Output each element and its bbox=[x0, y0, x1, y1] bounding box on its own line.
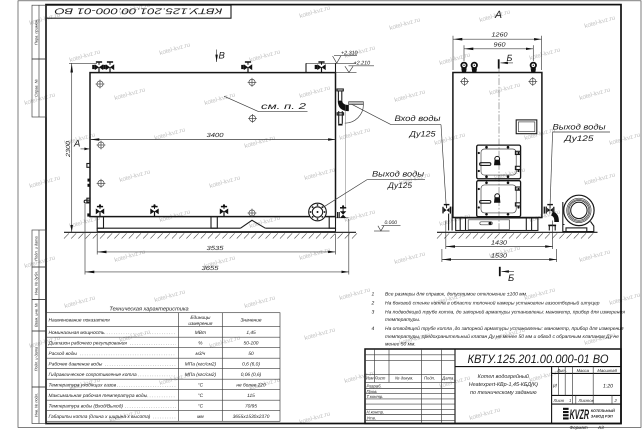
svg-text:kotel-kvz.ru: kotel-kvz.ru bbox=[299, 246, 332, 262]
svg-text:+2.210: +2.210 bbox=[354, 60, 371, 66]
svg-text:1: 1 bbox=[372, 292, 375, 298]
svg-text:Расход воды: Расход воды bbox=[49, 351, 78, 357]
svg-text:kotel-kvz.ru: kotel-kvz.ru bbox=[304, 326, 337, 342]
svg-text:Ду125: Ду125 bbox=[408, 129, 436, 138]
svg-text:2: 2 bbox=[614, 398, 618, 403]
svg-text:kotel-kvz.ru: kotel-kvz.ru bbox=[299, 4, 332, 20]
svg-text:Ду125: Ду125 bbox=[563, 134, 594, 143]
svg-text:А: А bbox=[494, 9, 502, 21]
svg-text:КВТУ.125.201.00.000-01 ВО: КВТУ.125.201.00.000-01 ВО bbox=[468, 352, 609, 366]
svg-text:1430: 1430 bbox=[491, 240, 508, 247]
svg-text:kotel-kvz.ru: kotel-kvz.ru bbox=[299, 84, 332, 100]
svg-text:°С: °С bbox=[198, 393, 204, 399]
svg-text:Выход воды: Выход воды bbox=[553, 122, 606, 131]
svg-text:Единицы: Единицы bbox=[190, 315, 211, 321]
svg-text:kotel-kvz.ru: kotel-kvz.ru bbox=[244, 294, 277, 310]
svg-text:1:20: 1:20 bbox=[603, 384, 613, 390]
svg-text:+2.310: +2.310 bbox=[341, 50, 358, 56]
svg-text:В: В bbox=[219, 51, 226, 62]
svg-text:Взам. инв. №: Взам. инв. № bbox=[34, 302, 39, 327]
svg-text:kotel-kvz.ru: kotel-kvz.ru bbox=[339, 286, 372, 302]
svg-text:70/95: 70/95 bbox=[245, 403, 257, 409]
svg-text:kotel-kvz.ru: kotel-kvz.ru bbox=[29, 174, 62, 190]
svg-text:ЗАВОД РЭП: ЗАВОД РЭП bbox=[591, 414, 613, 418]
svg-text:Инв. № подл.: Инв. № подл. bbox=[34, 393, 39, 417]
svg-text:kotel-kvz.ru: kotel-kvz.ru bbox=[114, 86, 147, 102]
svg-text:kotel-kvz.ru: kotel-kvz.ru bbox=[394, 88, 427, 104]
svg-text:kotel-kvz.ru: kotel-kvz.ru bbox=[114, 248, 147, 264]
svg-text:kotel-kvz.ru: kotel-kvz.ru bbox=[24, 254, 57, 270]
svg-text:Пров.: Пров. bbox=[367, 389, 378, 394]
svg-text:kotel-kvz.ru: kotel-kvz.ru bbox=[389, 16, 422, 32]
svg-text:Справ. №: Справ. № bbox=[34, 78, 39, 96]
svg-text:Все размеры для справок, допус: Все размеры для справок, допустимое откл… bbox=[385, 292, 527, 298]
svg-text:Наименование показателя: Наименование показателя bbox=[49, 318, 111, 324]
svg-text:kotel-kvz.ru: kotel-kvz.ru bbox=[579, 248, 612, 264]
svg-text:4: 4 bbox=[372, 326, 375, 332]
svg-text:kotel-kvz.ru: kotel-kvz.ru bbox=[119, 168, 152, 184]
svg-text:Масса: Масса bbox=[577, 368, 590, 373]
svg-text:На подводящей трубе котла, д: На подводящей трубе котла, до запорной а… bbox=[385, 310, 625, 316]
svg-text:kotel-kvz.ru: kotel-kvz.ru bbox=[609, 131, 642, 147]
svg-text:kotel-kvz.ru: kotel-kvz.ru bbox=[584, 14, 617, 30]
svg-text:Масштаб: Масштаб bbox=[597, 368, 617, 373]
svg-text:№ докум.: № докум. bbox=[395, 376, 413, 381]
svg-text:Подп. и дата: Подп. и дата bbox=[34, 235, 39, 260]
svg-text:Выход воды: Выход воды bbox=[372, 169, 424, 178]
svg-text:КВТУ.125.201.00.000-01 ВО: КВТУ.125.201.00.000-01 ВО bbox=[53, 6, 222, 15]
svg-text:МПа (кгс/см2): МПа (кгс/см2) bbox=[185, 361, 217, 367]
svg-text:КОТЕЛЬНЫЙ: КОТЕЛЬНЫЙ bbox=[591, 408, 615, 413]
svg-text:KVZR: KVZR bbox=[570, 407, 590, 422]
svg-text:Техническая характеристика: Техническая характеристика bbox=[109, 306, 188, 312]
svg-text:И: И bbox=[553, 384, 557, 390]
svg-text:Изм Лист: Изм Лист bbox=[366, 376, 386, 381]
svg-text:kotel-kvz.ru: kotel-kvz.ru bbox=[244, 134, 277, 150]
svg-text:0,06 (0,6): 0,06 (0,6) bbox=[241, 372, 262, 378]
svg-text:1: 1 bbox=[569, 398, 571, 403]
svg-text:2300: 2300 bbox=[65, 140, 72, 158]
svg-text:Н.контр.: Н.контр. bbox=[367, 410, 385, 415]
svg-text:kotel-kvz.ru: kotel-kvz.ru bbox=[579, 86, 612, 102]
svg-text:температуры, предохранительный: температуры, предохранительный клапан Ду… bbox=[385, 334, 619, 340]
svg-text:°С: °С bbox=[198, 382, 204, 388]
svg-text:Рабочее давление воды: Рабочее давление воды bbox=[49, 361, 103, 367]
svg-text:50: 50 bbox=[248, 351, 254, 357]
svg-text:Утв.: Утв. bbox=[367, 416, 377, 421]
svg-text:измерения: измерения bbox=[188, 322, 212, 327]
svg-text:не более 220: не более 220 bbox=[236, 382, 266, 388]
svg-text:А3: А3 bbox=[597, 425, 604, 430]
svg-text:Дата: Дата bbox=[441, 376, 454, 381]
svg-text:kotel-kvz.ru: kotel-kvz.ru bbox=[64, 294, 97, 310]
svg-text:Номинальная мощность: Номинальная мощность bbox=[49, 330, 106, 336]
svg-text:Подп.: Подп. bbox=[424, 376, 435, 381]
svg-text:0,6 (6,0): 0,6 (6,0) bbox=[242, 361, 260, 367]
svg-text:Гидравлическое сопротивление к: Гидравлическое сопротивление котла bbox=[49, 372, 137, 378]
svg-text:kotel-kvz.ru: kotel-kvz.ru bbox=[434, 131, 467, 147]
svg-text:3400: 3400 bbox=[207, 132, 225, 139]
svg-text:kotel-kvz.ru: kotel-kvz.ru bbox=[209, 174, 242, 190]
svg-text:0.000: 0.000 bbox=[385, 220, 398, 226]
svg-text:kotel-kvz.ru: kotel-kvz.ru bbox=[159, 41, 192, 57]
svg-text:по техническому заданию: по техническому заданию bbox=[470, 390, 537, 396]
svg-text:Лист: Лист bbox=[553, 398, 565, 403]
svg-text:МВт: МВт bbox=[195, 330, 206, 336]
svg-text:менее 50 мм.: менее 50 мм. bbox=[385, 342, 416, 348]
svg-text:мм: мм bbox=[197, 415, 204, 420]
svg-text:Значение: Значение bbox=[240, 318, 261, 324]
svg-text:kotel-kvz.ru: kotel-kvz.ru bbox=[204, 91, 237, 107]
svg-text:kotel-kvz.ru: kotel-kvz.ru bbox=[394, 250, 427, 266]
svg-text:Лит.: Лит. bbox=[556, 368, 567, 373]
svg-text:МПа (кгс/см2): МПа (кгс/см2) bbox=[185, 372, 217, 378]
svg-text:температуры.: температуры. bbox=[385, 318, 420, 323]
svg-text:kotel-kvz.ru: kotel-kvz.ru bbox=[469, 406, 502, 422]
svg-text:°С: °С bbox=[198, 403, 204, 409]
svg-text:kotel-kvz.ru: kotel-kvz.ru bbox=[489, 81, 522, 97]
svg-text:3: 3 bbox=[372, 310, 375, 316]
svg-text:Б: Б bbox=[507, 53, 513, 63]
svg-text:Температура воды (Вход/Выход): Температура воды (Вход/Выход) bbox=[49, 403, 124, 409]
svg-text:Формат: Формат bbox=[570, 425, 588, 430]
svg-text:Диапазон рабочего регулировани: Диапазон рабочего регулирования bbox=[48, 340, 128, 346]
svg-text:Б: Б bbox=[508, 273, 514, 284]
svg-text:Листов: Листов bbox=[578, 398, 595, 403]
svg-text:115: 115 bbox=[247, 393, 255, 399]
svg-text:2: 2 bbox=[371, 301, 375, 307]
svg-text:1,45: 1,45 bbox=[246, 330, 256, 336]
svg-text:Перв. примен.: Перв. примен. bbox=[34, 19, 39, 45]
svg-text:Котел водогрейный: Котел водогрейный bbox=[478, 374, 529, 380]
svg-text:3655: 3655 bbox=[202, 265, 220, 272]
svg-text:kotel-kvz.ru: kotel-kvz.ru bbox=[494, 166, 527, 182]
svg-text:Heatexpert-КВр-1,45-КБД(К): Heatexpert-КВр-1,45-КБД(К) bbox=[469, 382, 538, 388]
svg-text:3655х1530х2370: 3655х1530х2370 bbox=[233, 414, 270, 420]
svg-text:Максимальная рабочая температу: Максимальная рабочая температура воды bbox=[49, 393, 148, 399]
svg-text:На отводящей трубе котла ,до з: На отводящей трубе котла ,до запорной ар… bbox=[385, 326, 624, 332]
svg-text:Подп. и дата: Подп. и дата bbox=[34, 346, 39, 371]
svg-text:kotel-kvz.ru: kotel-kvz.ru bbox=[304, 166, 337, 182]
svg-text:Разраб.: Разраб. bbox=[367, 383, 382, 388]
svg-text:А: А bbox=[73, 139, 80, 150]
svg-text:3535: 3535 bbox=[207, 245, 225, 252]
svg-text:kotel-kvz.ru: kotel-kvz.ru bbox=[249, 48, 282, 64]
svg-text:см. п. 2: см. п. 2 bbox=[261, 101, 307, 111]
svg-text:kotel-kvz.ru: kotel-kvz.ru bbox=[24, 91, 57, 107]
svg-text:kotel-kvz.ru: kotel-kvz.ru bbox=[609, 291, 642, 307]
svg-text:Инв. № дубл.: Инв. № дубл. bbox=[34, 271, 39, 295]
svg-text:На боковой стенке котла в обла: На боковой стенке котла в области топочн… bbox=[385, 301, 600, 307]
svg-text:kotel-kvz.ru: kotel-kvz.ru bbox=[439, 212, 472, 228]
svg-text:960: 960 bbox=[494, 41, 507, 48]
svg-text:kotel-kvz.ru: kotel-kvz.ru bbox=[584, 171, 617, 187]
svg-text:Вход воды: Вход воды bbox=[395, 114, 441, 123]
svg-text:м3/ч: м3/ч bbox=[196, 351, 206, 357]
svg-text:Ду125: Ду125 bbox=[387, 181, 413, 190]
svg-text:Габариты котла (длина х ширина: Габариты котла (длина х ширина х высота) bbox=[49, 414, 151, 420]
svg-text:%: % bbox=[198, 340, 203, 346]
svg-text:1530: 1530 bbox=[491, 253, 508, 260]
svg-text:kotel-kvz.ru: kotel-kvz.ru bbox=[154, 288, 187, 304]
svg-text:kotel-kvz.ru: kotel-kvz.ru bbox=[524, 286, 557, 302]
svg-text:1260: 1260 bbox=[492, 32, 509, 39]
svg-text:Температура уходящих газов: Температура уходящих газов bbox=[49, 382, 117, 388]
svg-text:kotel-kvz.ru: kotel-kvz.ru bbox=[339, 126, 372, 142]
svg-text:Т.контр.: Т.контр. bbox=[367, 394, 384, 399]
svg-text:50-100: 50-100 bbox=[244, 340, 259, 346]
